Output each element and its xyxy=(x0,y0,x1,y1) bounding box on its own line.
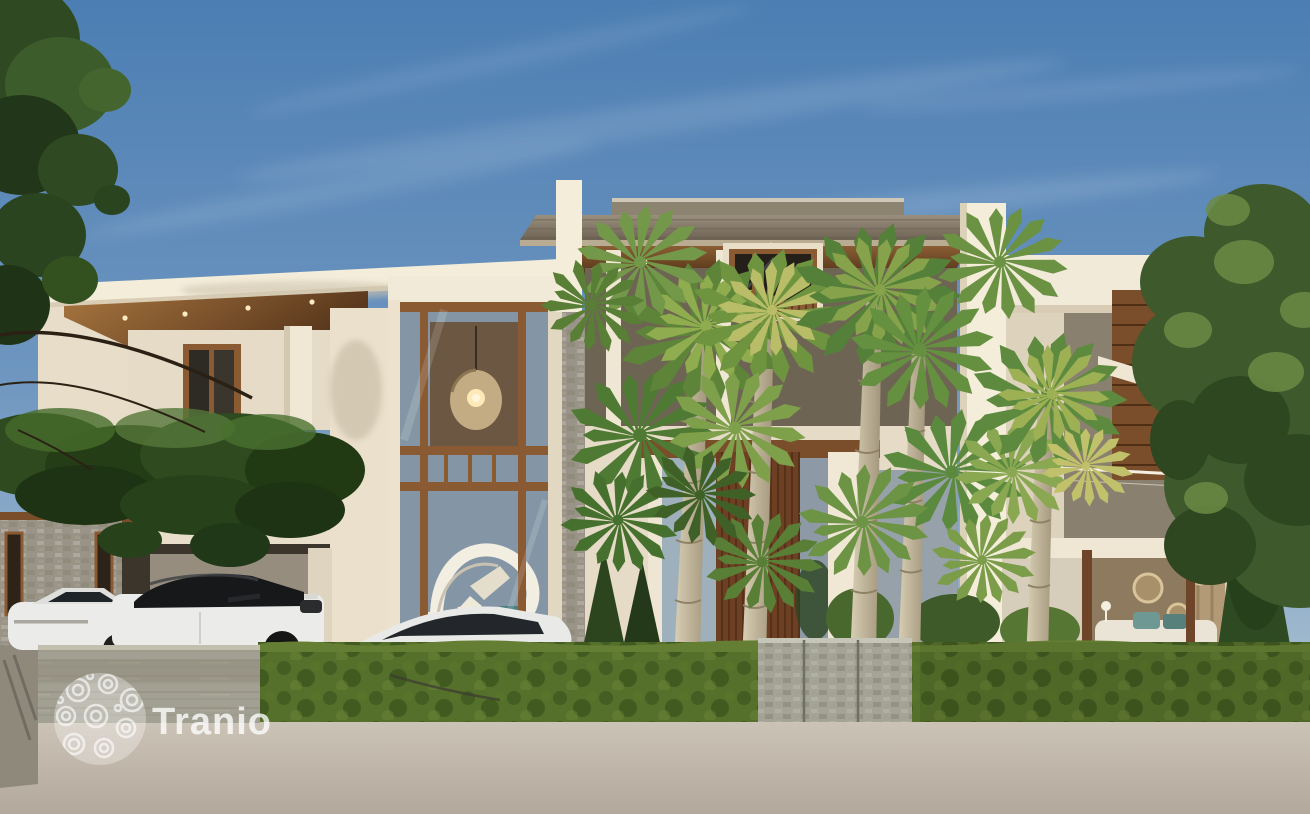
pillow xyxy=(1133,612,1160,629)
taillight-strip xyxy=(14,620,88,624)
tower-top-band xyxy=(388,276,568,306)
bush xyxy=(910,594,1000,650)
tower-left-frame xyxy=(388,300,400,652)
roof-texture xyxy=(520,215,984,240)
pillow xyxy=(1163,614,1187,629)
villa-render-image: Tranio xyxy=(0,0,1310,814)
tower-right-frame xyxy=(548,300,562,652)
watermark-brand-text: Tranio xyxy=(152,701,272,743)
scene-canvas: Tranio xyxy=(0,0,1310,814)
grille xyxy=(300,600,322,613)
porch-column-shade xyxy=(284,326,290,430)
table-lamp xyxy=(1101,601,1111,611)
wall-shadow-dapple xyxy=(330,340,382,440)
glass-stair-tower xyxy=(388,276,586,652)
wall-cap xyxy=(38,645,260,650)
wall-streak-band xyxy=(38,660,260,682)
gate-cap xyxy=(758,638,912,643)
headlight xyxy=(304,594,318,599)
stone-gate-pillar xyxy=(758,638,912,722)
roof-upper-tier xyxy=(612,202,904,215)
